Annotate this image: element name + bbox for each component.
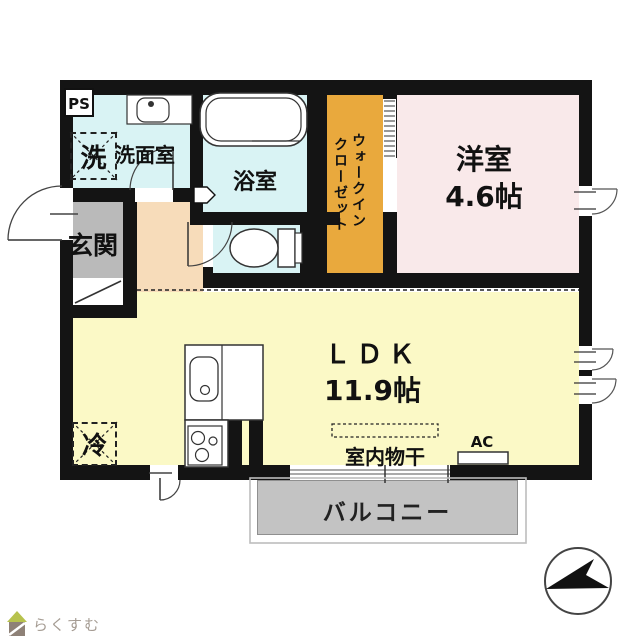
- ldk-area: 11.9帖: [305, 373, 440, 408]
- logo-house-icon: [7, 611, 27, 636]
- western-room-name: 洋室: [398, 141, 570, 178]
- washroom-label: 洗面室: [100, 139, 190, 168]
- western-room-window: [574, 189, 617, 214]
- western-room-label: 洋室 4.6帖: [398, 141, 570, 215]
- bathtub-icon: [200, 93, 307, 146]
- indoor-drying-rail: [332, 424, 438, 437]
- ac-label: AC: [457, 433, 507, 451]
- fridge-label: 冷: [82, 426, 107, 462]
- bathroom-label: 浴室: [225, 164, 285, 196]
- balcony-label: バルコニー: [320, 493, 455, 527]
- bath-door-marker: [194, 187, 215, 203]
- kitchen-icon: [185, 345, 263, 467]
- ldk-window-2: [574, 379, 616, 403]
- ldk-window-1: [574, 349, 613, 370]
- ldk-label: ＬＤＫ 11.9帖: [305, 338, 440, 408]
- north-arrow-icon: [545, 548, 611, 614]
- toilet-icon: [230, 229, 302, 267]
- vanity-sink-icon: [127, 95, 192, 124]
- western-room-area: 4.6帖: [398, 178, 570, 215]
- ac-unit-box: [458, 452, 508, 464]
- toilet-door: [188, 222, 232, 266]
- floorplan: PS 洗 洗面室 浴室 玄関 ウォークイン クローゼット 洋室 4.6帖 ＬＤＫ…: [0, 0, 640, 640]
- ps-box: PS: [64, 88, 94, 117]
- entrance-label: 玄関: [63, 226, 123, 262]
- ldk-name: ＬＤＫ: [305, 338, 440, 373]
- wic-label-line1: ウォークイン: [348, 133, 368, 229]
- shoe-cabinet-diagonal: [75, 281, 121, 303]
- plan-graphics: [0, 0, 640, 640]
- indoor-drying-label: 室内物干: [330, 441, 440, 470]
- logo-text: らくすむ: [33, 614, 101, 635]
- wic-bifold-hatch: [383, 99, 396, 159]
- back-door: [149, 473, 180, 500]
- fridge-box: 冷: [72, 422, 117, 466]
- wic-label-line2: クローゼット: [330, 137, 350, 233]
